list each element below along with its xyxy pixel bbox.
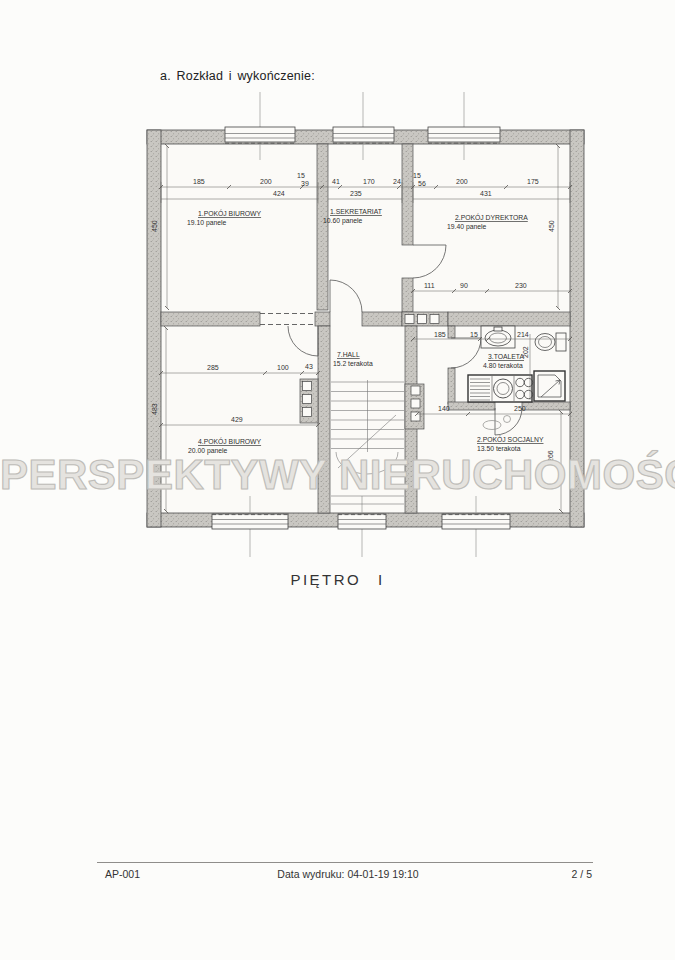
room-label: 2.POKÓJ DYREKTORA — [455, 213, 528, 221]
toilet-icon — [535, 333, 566, 351]
dim-label: 250 — [514, 405, 526, 412]
room-label: 4.POKÓJ BIUROWY — [198, 437, 262, 445]
dim-label: 200 — [260, 178, 272, 185]
dim-label: 185 — [193, 178, 205, 185]
room-area-label: 19.40 panele — [447, 223, 487, 231]
dim-label: 450 — [548, 220, 555, 232]
room-label: 1.SEKRETARIAT — [330, 208, 382, 215]
dim-label: 200 — [456, 178, 468, 185]
kitchenette-icon — [468, 375, 533, 402]
floor-caption: PIĘTRO I — [0, 571, 675, 588]
dim-label: 235 — [350, 190, 362, 197]
dim-label: 56 — [418, 180, 426, 187]
dim-label: 15 — [413, 172, 421, 179]
room-area-label: 19.10 panele — [187, 219, 227, 227]
dim-label: 41 — [332, 178, 340, 185]
dim-label: 24 — [393, 178, 401, 185]
document-page: a. Rozkład i wykończenie: — [0, 0, 675, 960]
shower-icon — [534, 371, 565, 401]
dim-label: 140 — [438, 405, 450, 412]
dim-label: 429 — [231, 416, 243, 423]
floor-area — [152, 136, 580, 522]
document-id: AP-001 — [105, 868, 140, 880]
dim-label: 230 — [515, 282, 527, 289]
room-area-label: 10.60 panele — [323, 217, 363, 225]
room-label: 3.TOALETA — [488, 353, 524, 360]
dim-label: 15 — [470, 331, 478, 338]
dim-label: 266 — [547, 450, 554, 462]
washbasin-icon — [481, 326, 515, 348]
dim-label: 214 — [517, 331, 529, 338]
room-label: 7.HALL — [337, 351, 360, 358]
room-area-label: 15.2 terakota — [333, 360, 373, 367]
dim-label: 431 — [480, 190, 492, 197]
top-windows — [225, 127, 500, 143]
dim-label: 483 — [151, 403, 158, 415]
footer-divider — [97, 862, 593, 863]
dim-label: 15 — [297, 172, 305, 179]
dim-label: 450 — [151, 220, 158, 232]
dim-label: 111 — [424, 282, 435, 289]
dim-label: 100 — [277, 364, 289, 371]
dim-label: 424 — [273, 190, 285, 197]
page-number: 2 / 5 — [572, 868, 592, 880]
room-area-label: 20.00 panele — [188, 447, 228, 455]
room-area-label: 4.80 terakota — [483, 362, 523, 369]
dim-label: 170 — [363, 178, 375, 185]
room-label: 2.POKÓJ SOCJALNY — [477, 435, 544, 443]
room-area-label: 13.50 terakota — [477, 445, 521, 452]
dim-label: 185 — [434, 331, 446, 338]
dim-label: 175 — [527, 178, 539, 185]
dim-label: 39 — [301, 180, 309, 187]
room-label: 1.POKÓJ BIUROWY — [198, 209, 262, 217]
dim-label: 90 — [460, 282, 468, 289]
floor-plan-drawing: 185 200 15 39 41 424 170 24 15 56 235 20… — [0, 0, 675, 960]
bottom-windows — [212, 514, 510, 529]
print-date: Data wydruku: 04-01-19 19:10 — [277, 868, 418, 880]
dim-label: 43 — [305, 363, 313, 370]
dim-label: 285 — [207, 364, 219, 371]
